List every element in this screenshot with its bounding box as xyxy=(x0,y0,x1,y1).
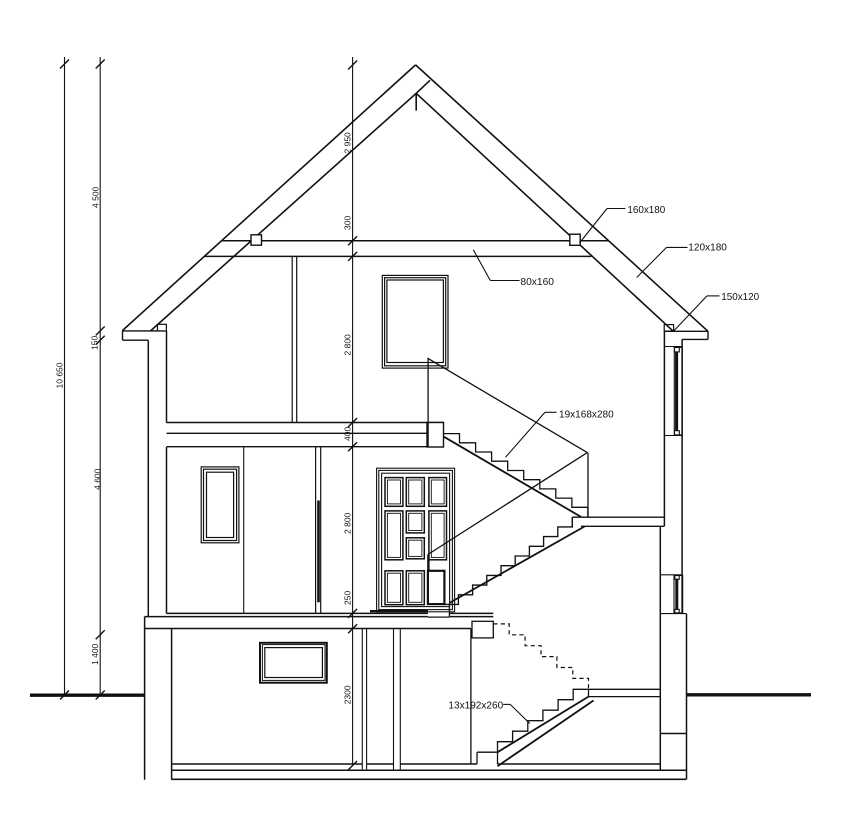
svg-text:300: 300 xyxy=(342,216,352,230)
svg-text:2 950: 2 950 xyxy=(342,132,352,154)
svg-text:150: 150 xyxy=(90,336,100,350)
svg-text:1 400: 1 400 xyxy=(90,643,100,665)
svg-text:13x192x260: 13x192x260 xyxy=(448,699,503,711)
svg-text:160x180: 160x180 xyxy=(627,204,665,216)
svg-text:4 500: 4 500 xyxy=(91,186,101,208)
svg-text:2 800: 2 800 xyxy=(342,334,352,356)
svg-text:150x120: 150x120 xyxy=(721,291,759,303)
svg-text:10 650: 10 650 xyxy=(55,362,65,388)
svg-text:2300: 2300 xyxy=(342,685,352,704)
svg-text:400: 400 xyxy=(342,427,352,441)
svg-text:80x160: 80x160 xyxy=(520,276,554,288)
svg-text:120x180: 120x180 xyxy=(688,242,727,254)
svg-text:19x168x280: 19x168x280 xyxy=(559,409,614,421)
svg-text:2 800: 2 800 xyxy=(342,512,352,534)
svg-text:4 600: 4 600 xyxy=(93,468,103,490)
svg-text:250: 250 xyxy=(342,591,352,605)
